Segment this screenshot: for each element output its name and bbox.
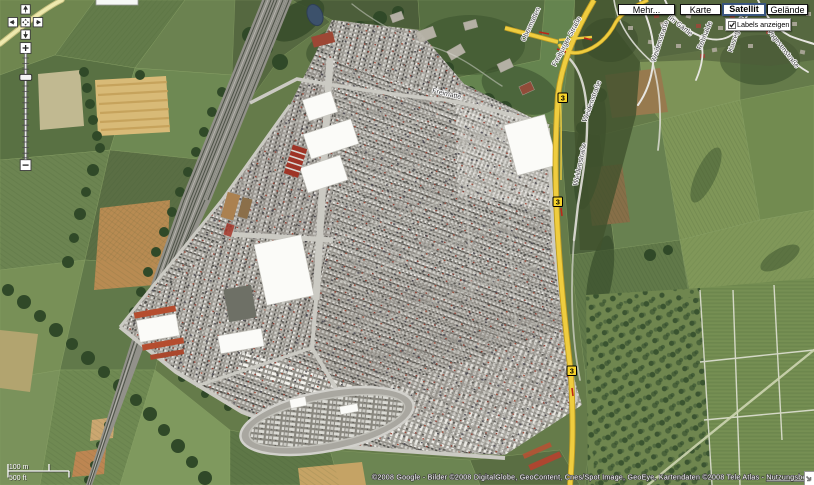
svg-text:100 m: 100 m [9,464,29,471]
svg-text:3: 3 [570,367,574,376]
svg-text:3: 3 [561,94,565,103]
svg-text:©2008 Google - Bilder ©2008 Di: ©2008 Google - Bilder ©2008 DigitalGlobe… [372,474,814,482]
svg-text:3: 3 [556,198,560,207]
svg-text:500 ft: 500 ft [9,475,27,482]
